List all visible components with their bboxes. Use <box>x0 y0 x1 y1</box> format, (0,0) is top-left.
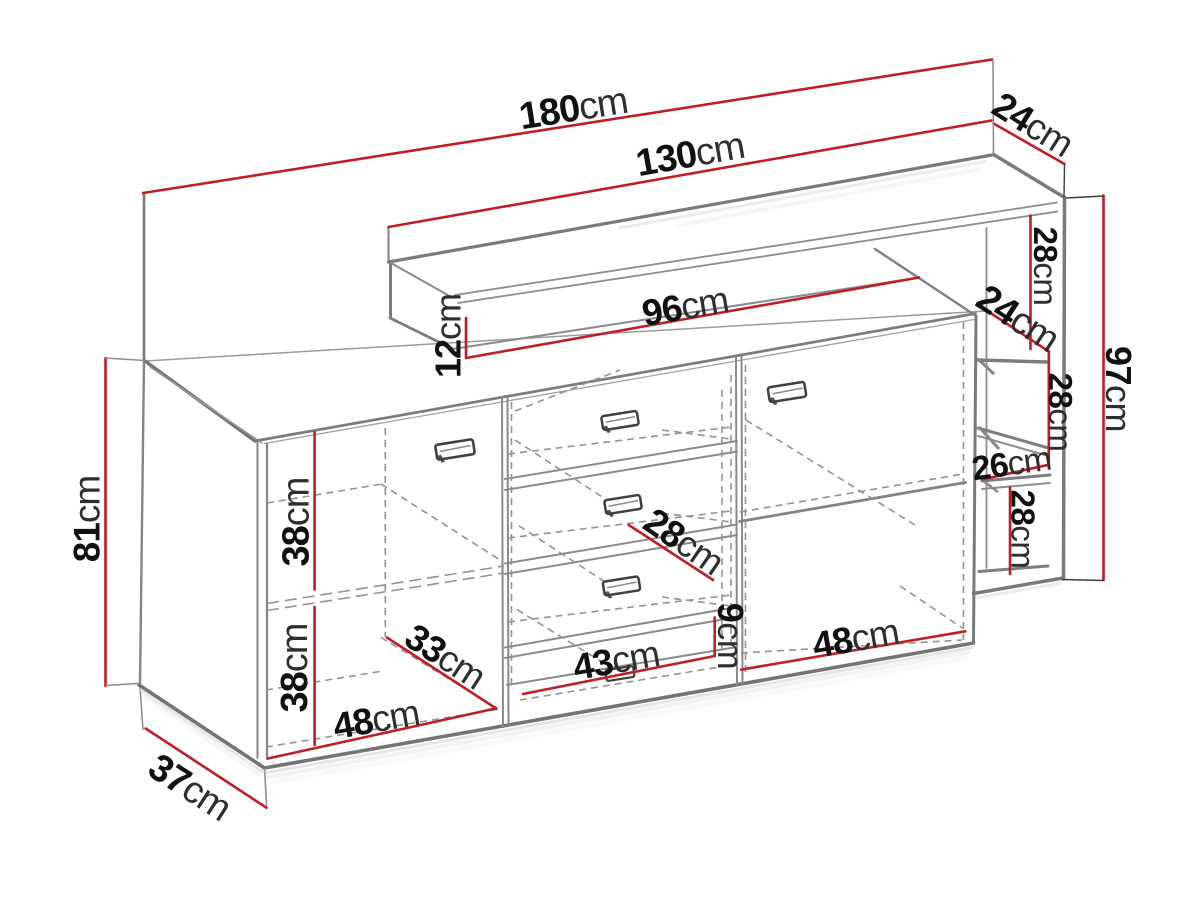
svg-text:38cm: 38cm <box>274 624 316 713</box>
svg-text:97cm: 97cm <box>1098 346 1139 432</box>
svg-text:28cm: 28cm <box>1005 490 1042 569</box>
svg-text:81cm: 81cm <box>67 476 108 562</box>
svg-text:12cm: 12cm <box>428 294 469 378</box>
svg-text:9cm: 9cm <box>710 603 751 670</box>
svg-text:38cm: 38cm <box>276 478 318 567</box>
svg-text:28cm: 28cm <box>1027 227 1064 306</box>
